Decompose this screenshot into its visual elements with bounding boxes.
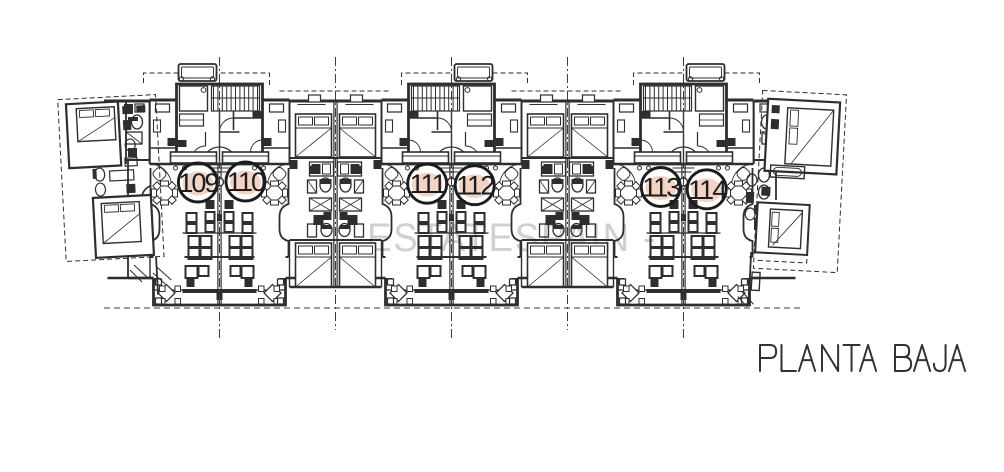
svg-text:114: 114 [688,175,727,205]
svg-text:113: 113 [642,173,680,203]
svg-text:110: 110 [227,167,265,197]
svg-text:112: 112 [456,171,494,201]
svg-text:111: 111 [410,169,446,199]
svg-text:109: 109 [178,168,218,198]
